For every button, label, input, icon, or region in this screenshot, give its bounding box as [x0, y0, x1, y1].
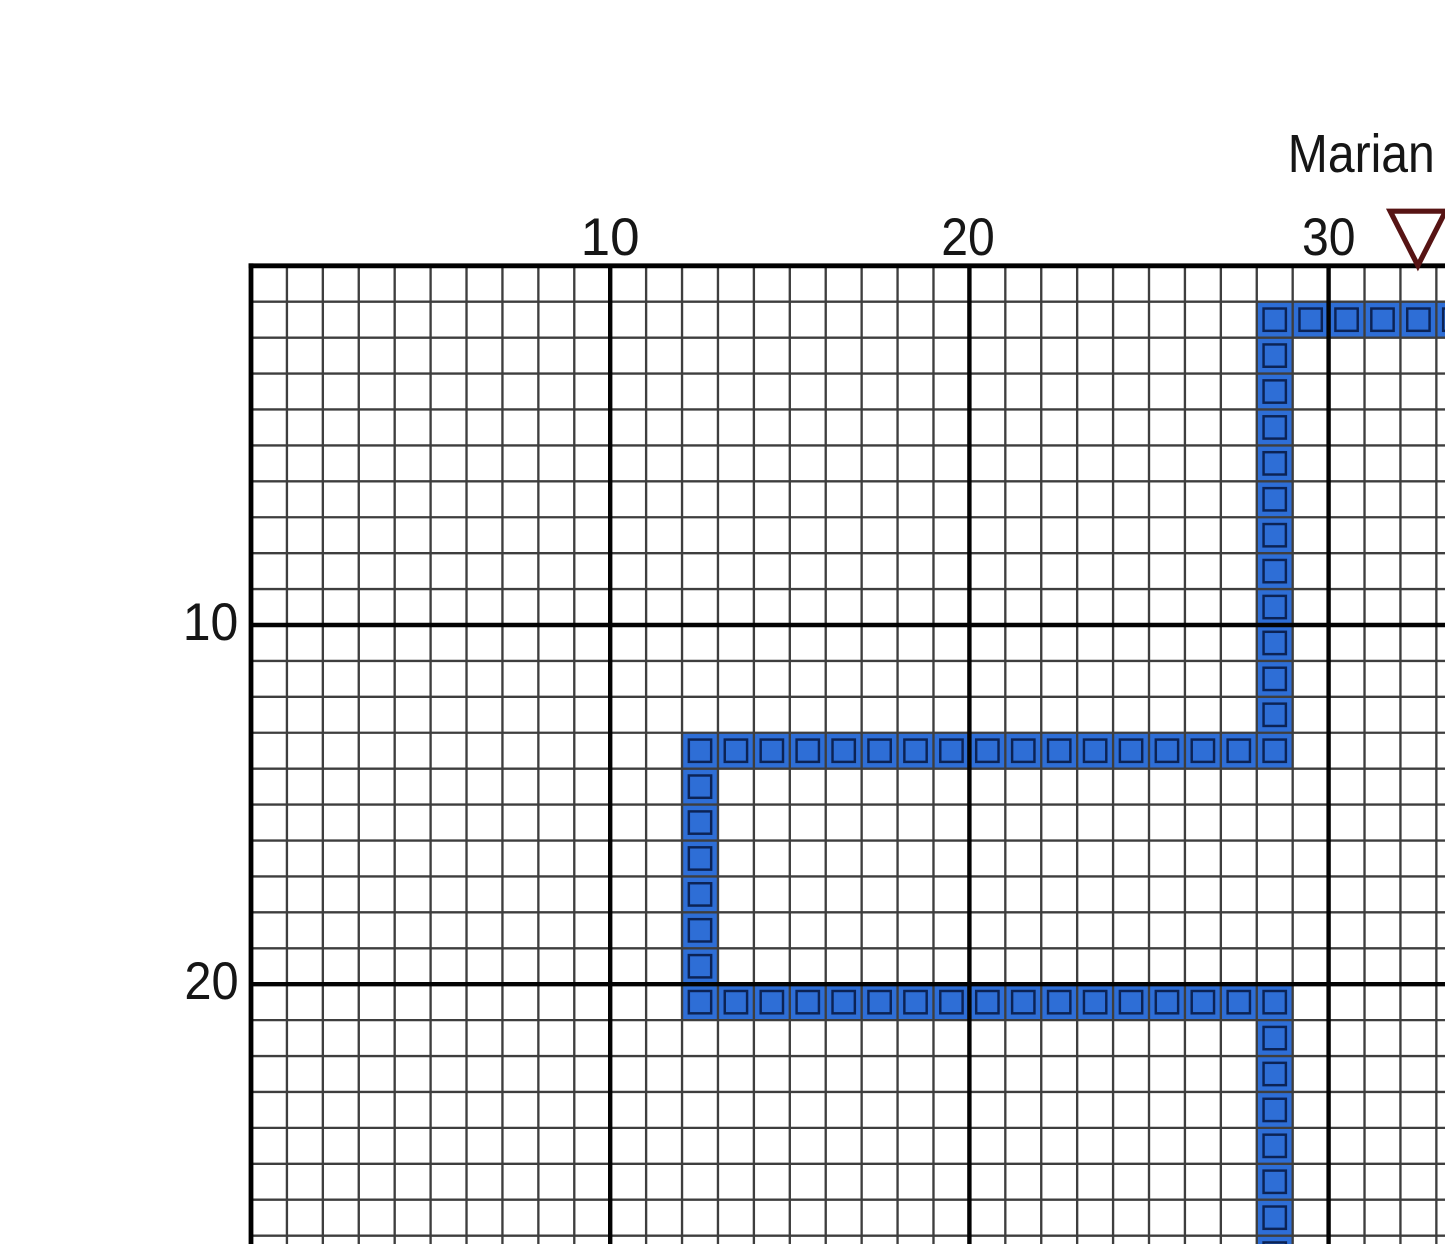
- svg-text:20: 20: [941, 208, 995, 267]
- svg-text:Marian: Marian: [1288, 124, 1435, 184]
- svg-text:10: 10: [581, 208, 640, 267]
- svg-text:30: 30: [1302, 208, 1356, 267]
- svg-text:10: 10: [183, 593, 239, 652]
- svg-text:20: 20: [184, 952, 238, 1011]
